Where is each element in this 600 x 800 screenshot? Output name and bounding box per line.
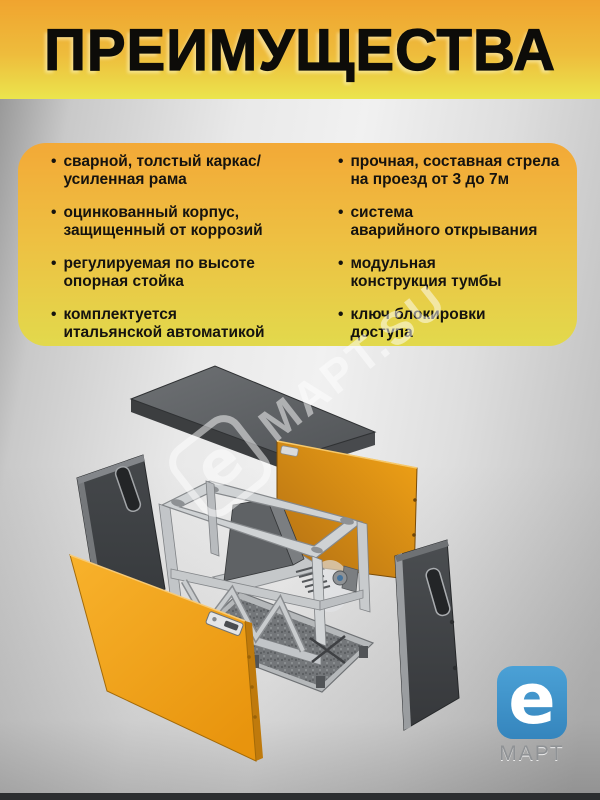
- item-line: модульная: [350, 255, 435, 272]
- item-line: итальянской автоматикой: [63, 324, 264, 341]
- bullet-icon: •: [51, 306, 56, 342]
- bullet-icon: •: [338, 153, 343, 189]
- vent-grill: [296, 566, 330, 592]
- item-line: конструкция тумбы: [350, 273, 501, 290]
- mid-shelf: [171, 569, 320, 610]
- motor-unit: [213, 499, 330, 592]
- ring-cutouts: [170, 485, 354, 555]
- bullet-icon: •: [51, 255, 56, 291]
- base-feet: [250, 636, 368, 688]
- front-orange-panel: [70, 555, 263, 761]
- bullet-icon: •: [338, 255, 343, 291]
- list-item: • оцинкованный корпус, защищенный от кор…: [51, 204, 338, 240]
- item-line: оцинкованный корпус,: [63, 204, 239, 221]
- item-line: опорная стойка: [63, 273, 183, 290]
- item-line: прочная, составная стрела: [350, 153, 559, 170]
- list-item: • сварной, толстый каркас/ усиленная рам…: [51, 153, 338, 189]
- rear-orange-panel: [277, 441, 417, 580]
- list-item: • прочная, составная стрела на проезд от…: [338, 153, 563, 189]
- left-side-panel: [77, 455, 165, 613]
- watermark-e-icon: e: [161, 407, 279, 525]
- advantages-card: • сварной, толстый каркас/ усиленная рам…: [18, 143, 577, 346]
- left-post: [159, 504, 181, 598]
- item-line: комплектуется: [63, 306, 177, 323]
- lid-panel: [131, 366, 375, 472]
- item-line: система: [350, 204, 413, 221]
- item-line: защищенный от коррозий: [63, 222, 262, 239]
- brand-logo: e МАРТ: [494, 666, 570, 766]
- near-post: [312, 556, 326, 646]
- page-title: ПРЕИМУЩЕСТВА: [44, 15, 556, 84]
- item-line: ключ блокировки: [350, 306, 485, 323]
- right-post: [357, 521, 370, 612]
- truss-braces: [184, 581, 303, 651]
- bottom-strip: [0, 793, 600, 800]
- bullet-icon: •: [338, 306, 343, 342]
- list-item: • регулируемая по высоте опорная стойка: [51, 255, 338, 291]
- header-band: ПРЕИМУЩЕСТВА: [0, 0, 600, 99]
- gearbox: [333, 566, 358, 592]
- spring-housing: [310, 560, 350, 612]
- bullet-icon: •: [338, 204, 343, 240]
- frame-cage: [159, 481, 370, 688]
- brand-e-icon: e: [497, 666, 567, 739]
- list-item: • модульная конструкция тумбы: [338, 255, 563, 291]
- panel-label: [205, 611, 243, 636]
- back-post: [206, 481, 219, 556]
- bullet-icon: •: [51, 204, 56, 240]
- item-line: на проезд от 3 до 7м: [350, 171, 509, 188]
- right-door-panel: [395, 540, 459, 730]
- advantages-column-right: • прочная, составная стрела на проезд от…: [338, 153, 563, 346]
- bottom-rail: [173, 612, 321, 665]
- foundation-slab: [188, 592, 373, 692]
- top-ring: [162, 481, 362, 558]
- item-line: доступа: [350, 324, 412, 341]
- list-item: • комплектуется итальянской автоматикой: [51, 306, 338, 342]
- brand-caption: МАРТ: [494, 742, 570, 766]
- advantages-column-left: • сварной, толстый каркас/ усиленная рам…: [51, 153, 338, 346]
- item-line: регулируемая по высоте: [63, 255, 254, 272]
- item-line: сварной, толстый каркас/: [63, 153, 261, 170]
- mid-shelf-right: [320, 590, 363, 610]
- bullet-icon: •: [51, 153, 56, 189]
- list-item: • ключ блокировки доступа: [338, 306, 563, 342]
- list-item: • система аварийного открывания: [338, 204, 563, 240]
- poster: ПРЕИМУЩЕСТВА • сварной, толстый каркас/ …: [0, 0, 600, 800]
- item-line: усиленная рама: [63, 171, 186, 188]
- item-line: аварийного открывания: [350, 222, 537, 239]
